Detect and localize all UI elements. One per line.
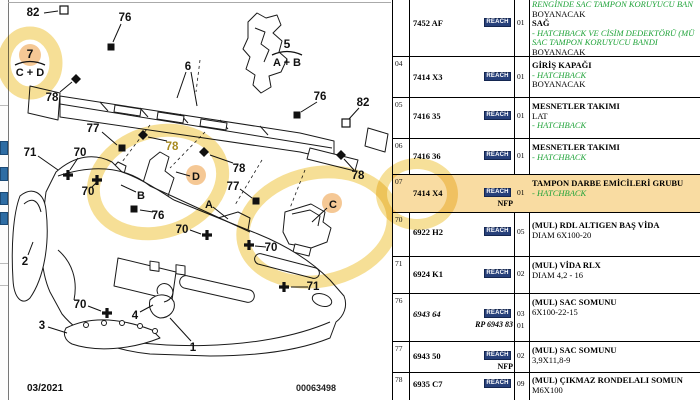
marker-square <box>294 112 301 119</box>
parts-catalog-page: 8276786768277787878717070767077707071123… <box>0 0 700 400</box>
quantity: 01 <box>517 72 531 81</box>
callout-label-70: 70 <box>265 242 278 254</box>
description-line: BOYANACAK <box>532 80 700 90</box>
row-index: 71 <box>395 259 403 268</box>
callout-line <box>60 82 72 92</box>
callout-label-1: 1 <box>190 342 197 354</box>
description-line: M6X100 <box>532 386 700 396</box>
table-row[interactable]: 776943 50REACHNFP02(MUL) SAC SOMUNU3,9X1… <box>393 342 700 373</box>
table-row[interactable]: 716924 K1REACH02(MUL) VİDA RLXDIAM 4,2 -… <box>393 257 700 294</box>
right-edge-bracket <box>365 128 388 152</box>
marker-square <box>108 44 115 51</box>
table-row[interactable]: 766943 64REACHRP 6943 830301(MUL) SAC SO… <box>393 294 700 342</box>
description-cell: (MUL) VİDA RLXDIAM 4,2 - 16 <box>532 261 700 280</box>
callout-line <box>102 132 117 145</box>
part-number: 6924 K1 <box>413 269 443 279</box>
sensor-hole <box>150 261 159 271</box>
marker-square <box>131 206 138 213</box>
legend-letters: C + D <box>16 67 44 79</box>
description-line: DIAM 4,2 - 16 <box>532 271 700 281</box>
part-number: 6943 64 <box>413 309 441 319</box>
description-line: 6X100-22-15 <box>532 308 700 318</box>
callout-line <box>177 72 186 98</box>
quantity: 01 <box>517 321 531 330</box>
callout-label-3: 3 <box>39 320 45 332</box>
callout-label-71: 71 <box>24 147 37 159</box>
callout-label-78: 78 <box>352 170 365 182</box>
table-row[interactable]: 077414 X4REACHNFP01TAMPON DARBE EMİCİLER… <box>393 175 700 213</box>
quantity: 01 <box>517 18 531 27</box>
callout-label-2: 2 <box>22 256 28 268</box>
table-row[interactable]: 7452 AFREACH01RENGİNDE SAC TAMPON KORUYU… <box>393 0 700 57</box>
table-row[interactable]: 786935 C7REACH09(MUL) ÇIKMAZ RONDELALI S… <box>393 373 700 400</box>
part-number: 7416 36 <box>413 151 441 161</box>
row-index: 70 <box>395 215 403 224</box>
row-index: 78 <box>395 375 403 384</box>
callout-label-4: 4 <box>132 310 139 322</box>
variant-letter-A: A <box>205 199 213 211</box>
reach-badge[interactable]: REACH <box>484 18 511 27</box>
description-cell: TAMPON DARBE EMİCİLERİ GRUBU- HATCHBACK <box>532 179 700 198</box>
callout-line <box>38 156 58 170</box>
description-line: - HATCHBACK <box>532 121 700 131</box>
nfp-label: NFP <box>484 362 513 371</box>
parts-table: 7452 AFREACH01RENGİNDE SAC TAMPON KORUYU… <box>392 0 700 400</box>
description-cell: MESNETLER TAKIMILAT- HATCHBACK <box>532 102 700 131</box>
marker-open-square <box>60 6 68 14</box>
table-row[interactable]: 067416 36REACH01MESNETLER TAKIMI- HATCHB… <box>393 139 700 175</box>
callout-label-76: 76 <box>314 91 327 103</box>
description-line: - HATCHBACK <box>532 189 700 199</box>
reach-badge[interactable]: REACH <box>484 379 511 388</box>
footer-date: 03/2021 <box>27 383 63 394</box>
legend-letters: A + B <box>273 57 301 69</box>
description-line: MESNETLER TAKIMI <box>532 102 700 112</box>
legend-number: 7 <box>27 47 34 61</box>
callout-line <box>44 11 58 13</box>
callout-label-82: 82 <box>27 7 40 19</box>
description-line: - HATCHBACK <box>532 153 700 163</box>
quantity: 02 <box>517 351 531 360</box>
reach-badge[interactable]: REACH <box>484 188 511 197</box>
quantity: 03 <box>517 309 531 318</box>
callout-label-70: 70 <box>74 147 87 159</box>
variant-letter-B: B <box>137 190 145 202</box>
nfp-label: NFP <box>484 199 513 208</box>
marker-diamond <box>71 74 81 84</box>
marker-square <box>253 198 260 205</box>
deflector-part2 <box>12 191 47 301</box>
callout-label-76: 76 <box>152 210 165 222</box>
callout-line <box>240 189 252 198</box>
reach-badge[interactable]: REACH <box>484 72 511 81</box>
part-number: 7416 35 <box>413 111 441 121</box>
quantity: 01 <box>517 111 531 120</box>
row-index: 06 <box>395 141 403 150</box>
reach-badge[interactable]: REACH <box>484 269 511 278</box>
quantity: 01 <box>517 151 531 160</box>
callout-line <box>349 108 359 119</box>
row-index: 07 <box>395 177 403 186</box>
sensor-hole <box>176 265 185 275</box>
replacement-part-number: RP 6943 83 <box>467 320 513 329</box>
description-line: DIAM 6X100-20 <box>532 231 700 241</box>
part-number: 7414 X3 <box>413 72 443 82</box>
callout-label-70: 70 <box>74 299 87 311</box>
quantity: 01 <box>517 188 531 197</box>
callout-line <box>301 102 317 112</box>
table-row[interactable]: 057416 35REACH01MESNETLER TAKIMILAT- HAT… <box>393 98 700 139</box>
table-row[interactable]: 047414 X3REACH01GİRİŞ KAPAĞI- HATCHBACKB… <box>393 57 700 98</box>
diagram-artwork <box>12 13 388 356</box>
description-cell: RENGİNDE SAC TAMPON KORUYUCU BANBOYANACA… <box>532 0 700 58</box>
table-row[interactable]: 706922 H2REACH05(MUL) RDL ALTIGEN BAŞ Vİ… <box>393 213 700 257</box>
legend-number: 5 <box>284 37 291 51</box>
part-number: 7452 AF <box>413 18 443 28</box>
description-cell: MESNETLER TAKIMI- HATCHBACK <box>532 143 700 162</box>
callout-label-76: 76 <box>119 12 132 24</box>
part-number: 6943 50 <box>413 351 441 361</box>
callout-line <box>191 72 197 106</box>
reach-badge[interactable]: REACH <box>484 151 511 160</box>
callout-label-82: 82 <box>357 97 370 109</box>
bumper-exploded-diagram: 8276786768277787878717070767077707071123… <box>0 0 392 400</box>
row-index: 77 <box>395 344 403 353</box>
callout-label-70: 70 <box>176 224 189 236</box>
row-index: 76 <box>395 296 403 305</box>
reach-badge[interactable]: REACH <box>484 111 511 120</box>
description-cell: (MUL) RDL ALTIGEN BAŞ VİDADIAM 6X100-20 <box>532 221 700 240</box>
callout-line <box>48 327 67 333</box>
reach-badge[interactable]: REACH <box>484 227 511 236</box>
part-number: 6922 H2 <box>413 227 443 237</box>
marker-open-square <box>342 119 350 127</box>
variant-letter-C: C <box>329 199 337 211</box>
upper-bracket-part <box>243 13 287 93</box>
callout-label-77: 77 <box>87 123 100 135</box>
reach-badge[interactable]: REACH <box>484 309 511 318</box>
description-cell: GİRİŞ KAPAĞI- HATCHBACKBOYANACAK <box>532 61 700 90</box>
callout-label-71: 71 <box>307 281 320 293</box>
quantity: 09 <box>517 379 531 388</box>
description-cell: (MUL) ÇIKMAZ RONDELALI SOMUNM6X100 <box>532 376 700 395</box>
part-number: 6935 C7 <box>413 379 443 389</box>
callout-label-6: 6 <box>185 61 191 73</box>
callout-label-78: 78 <box>233 163 246 175</box>
quantity: 05 <box>517 227 531 236</box>
marker-square <box>119 145 126 152</box>
callout-label-70: 70 <box>82 186 95 198</box>
variant-letter-D: D <box>192 171 200 183</box>
part-number: 7414 X4 <box>413 188 443 198</box>
row-index: 05 <box>395 100 403 109</box>
callout-label-77: 77 <box>227 181 240 193</box>
callout-label-78: 78 <box>46 92 59 104</box>
callout-label-78: 78 <box>166 141 179 153</box>
callout-line <box>113 24 121 42</box>
description-line: BOYANACAK <box>532 10 700 20</box>
description-line: 3,9X11,8-9 <box>532 356 700 366</box>
reach-badge[interactable]: REACH <box>484 351 511 360</box>
callout-line <box>148 137 167 141</box>
description-cell: (MUL) SAC SOMUNU3,9X11,8-9 <box>532 346 700 365</box>
quantity: 02 <box>517 269 531 278</box>
row-index: 04 <box>395 59 403 68</box>
description-cell: (MUL) SAC SOMUNU6X100-22-15 <box>532 298 700 317</box>
footer-drawing-number: 00063498 <box>296 383 336 393</box>
